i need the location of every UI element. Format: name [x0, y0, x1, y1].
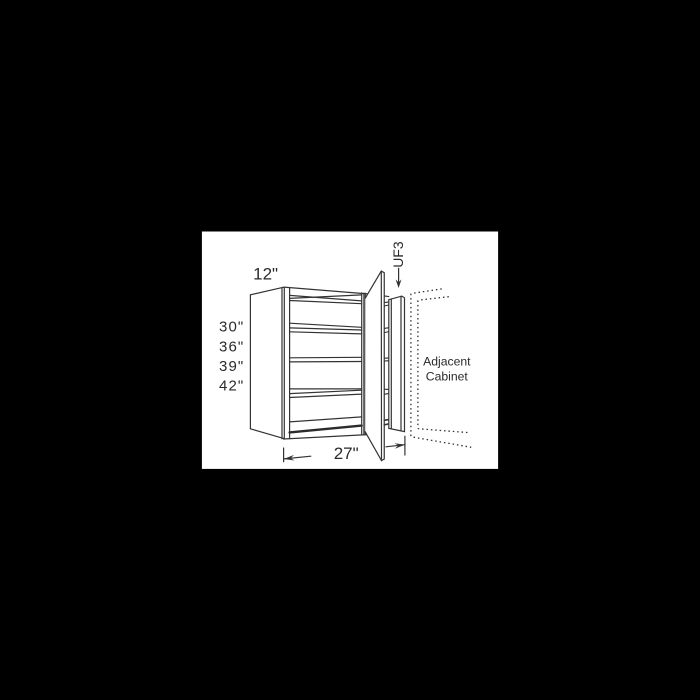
svg-text:39": 39" [219, 358, 244, 375]
svg-text:12": 12" [253, 265, 278, 284]
svg-text:Cabinet: Cabinet [426, 370, 469, 384]
svg-text:UF3: UF3 [390, 241, 406, 268]
svg-text:Adjacent: Adjacent [423, 354, 471, 368]
svg-text:36": 36" [219, 339, 244, 356]
svg-text:27": 27" [334, 444, 359, 463]
svg-text:42": 42" [219, 378, 244, 395]
svg-text:30": 30" [219, 319, 244, 336]
